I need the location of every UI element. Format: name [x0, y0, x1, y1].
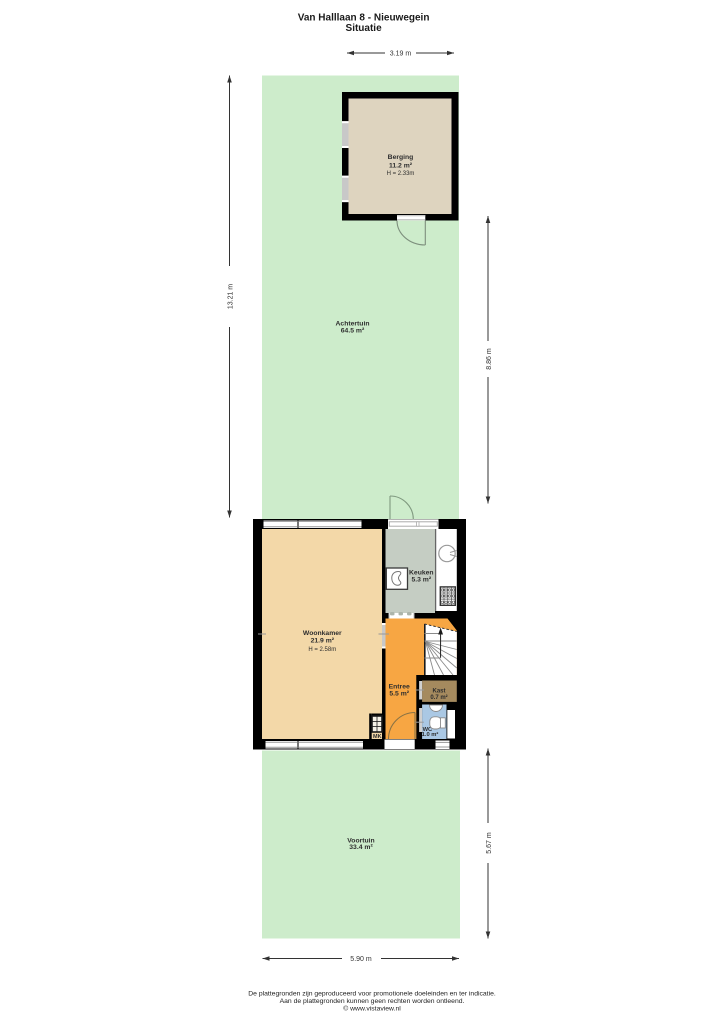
svg-text:© www.vistaview.nl: © www.vistaview.nl [343, 1005, 401, 1013]
svg-text:5.90 m: 5.90 m [350, 956, 372, 963]
svg-text:MK: MK [373, 734, 382, 740]
svg-text:Woonkamer: Woonkamer [303, 630, 342, 637]
svg-text:33.4 m²: 33.4 m² [349, 844, 373, 851]
svg-text:H = 2.58m: H = 2.58m [308, 647, 336, 653]
svg-text:Van Halllaan 8 - Nieuwegein: Van Halllaan 8 - Nieuwegein [298, 13, 430, 24]
svg-text:Entree: Entree [389, 683, 410, 690]
svg-text:0.7 m²: 0.7 m² [430, 694, 447, 701]
svg-text:1.0 m²: 1.0 m² [422, 731, 439, 738]
svg-text:64.5 m²: 64.5 m² [341, 327, 365, 334]
svg-text:5.3 m²: 5.3 m² [411, 576, 431, 583]
svg-text:13.21 m: 13.21 m [228, 284, 235, 309]
svg-text:5.5 m²: 5.5 m² [389, 690, 409, 697]
svg-text:Situatie: Situatie [346, 23, 383, 34]
svg-text:3.19 m: 3.19 m [390, 51, 412, 58]
svg-text:5.67 m: 5.67 m [486, 832, 493, 854]
svg-text:Kast: Kast [432, 689, 445, 695]
svg-text:Berging: Berging [388, 154, 414, 161]
svg-text:11.2 m²: 11.2 m² [389, 162, 413, 169]
svg-text:De plattegronden zijn geproduc: De plattegronden zijn geproduceerd voor … [248, 990, 496, 997]
svg-text:21.9 m²: 21.9 m² [311, 638, 335, 645]
svg-text:Aan de plattegronden kunnen ge: Aan de plattegronden kunnen geen rechten… [280, 998, 465, 1005]
svg-text:8.86 m: 8.86 m [486, 348, 493, 370]
svg-text:H = 2.33m: H = 2.33m [387, 171, 415, 177]
